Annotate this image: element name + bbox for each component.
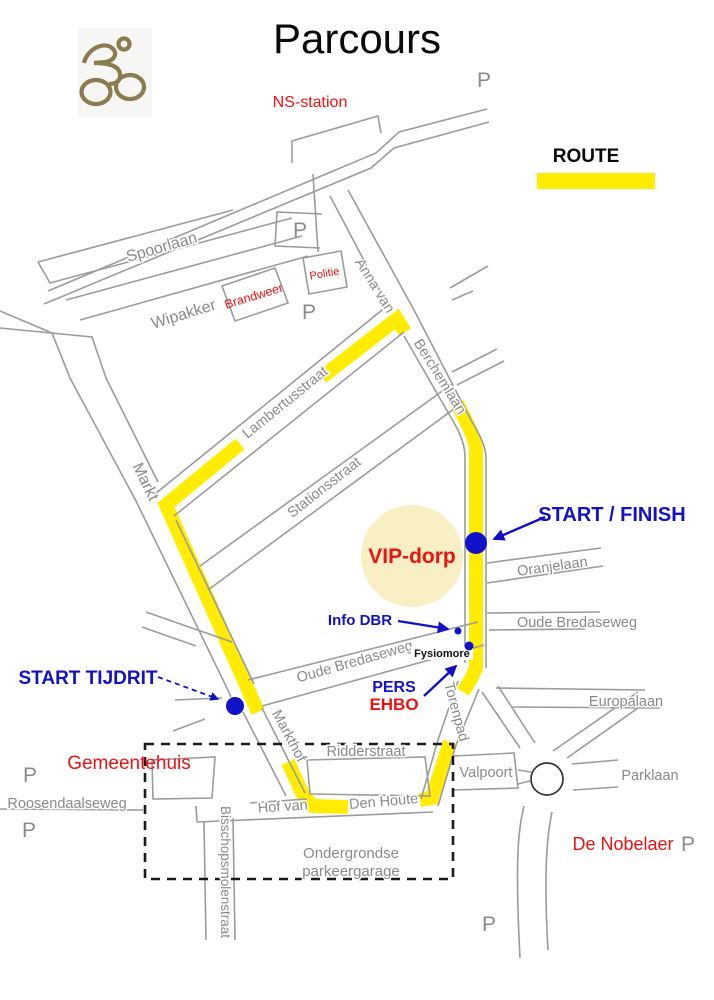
place-labels: NS-station Politie Brandweer Gemeentehui… [67, 94, 673, 854]
parking-marker: P [302, 301, 316, 324]
railway-line-upper [48, 109, 487, 291]
road-segment [517, 806, 552, 958]
info-dbr-arrow [398, 621, 448, 629]
street-label-stationsstraat: Stationsstraat [285, 454, 365, 521]
street-label-roosendaalseweg: Roosendaalseweg [7, 796, 126, 812]
road-segment [487, 612, 600, 613]
road-segment [572, 760, 618, 790]
fysiomore-label: Fysiomore [414, 648, 470, 660]
politie-label: Politie [309, 266, 341, 283]
street-label-bisschopsmolenstraat: Bisschopsmolenstraat [218, 806, 233, 938]
road-segment [518, 770, 531, 784]
parking-marker: P [23, 764, 37, 787]
page-title: Parcours [273, 15, 441, 62]
route-legend-swatch [537, 173, 655, 189]
start-tijdrit-arrow [158, 677, 218, 699]
road-segment [174, 332, 404, 516]
pers-ehbo-dot [465, 642, 474, 651]
roundabout [531, 763, 563, 795]
street-label-wipakker: Wipakker [149, 297, 218, 333]
road-segment [0, 328, 158, 482]
route-legend-label: ROUTE [553, 146, 620, 167]
street-label-parklaan: Parklaan [621, 768, 678, 784]
start-tijdrit-label: START TIJDRIT [19, 668, 158, 689]
ns-station-label: NS-station [273, 94, 348, 111]
railway-line-lower [44, 122, 489, 304]
parking-marker: P [477, 69, 491, 92]
road-segment [176, 520, 254, 684]
street-label-berchemlaan: Berchemlaan [410, 336, 469, 417]
parking-marker: P [482, 913, 496, 936]
course-markers: START / FINISH START TIJDRIT Info DBR PE… [19, 504, 686, 715]
road-segment [173, 719, 205, 731]
route-legend: ROUTE [537, 146, 655, 189]
pers-label: PERS [372, 679, 416, 696]
street-label-hof-van: Hof van [257, 797, 308, 816]
map-canvas: Spoorlaan Wipakker Lambertusstraat Stati… [0, 0, 714, 1000]
info-dbr-dot [455, 628, 462, 635]
parking-marker: P [22, 819, 36, 842]
start-finish-label: START / FINISH [538, 504, 685, 526]
parcours-map: Spoorlaan Wipakker Lambertusstraat Stati… [0, 0, 714, 1000]
fysiomore-marker: Fysiomore [411, 646, 473, 660]
street-label-ridderstraat: Ridderstraat [327, 744, 406, 760]
parking-garage-label-line1: Ondergrondse [303, 845, 399, 862]
de-nobelaer-label: De Nobelaer [572, 834, 673, 854]
road-segment [0, 311, 231, 697]
ridderstraat-block-outline [307, 757, 430, 796]
road-segment [175, 698, 222, 700]
parking-garage-label-line2: parkeergarage [302, 863, 400, 880]
street-label-lambertusstraat: Lambertusstraat [240, 364, 331, 442]
road-segment [496, 688, 645, 690]
route-segment-lambertus-markt [166, 444, 258, 712]
road-segment [482, 686, 535, 748]
street-label-valpoort: Valpoort [460, 765, 513, 781]
road-segment [450, 266, 504, 385]
road-segment [142, 627, 196, 646]
street-labels: Spoorlaan Wipakker Lambertusstraat Stati… [7, 229, 678, 938]
road-network [0, 109, 660, 958]
street-label-anna-van: Anna van [351, 256, 397, 316]
parking-marker: P [293, 219, 307, 242]
road-segment [196, 806, 197, 822]
street-label-oude-bredaseweg-east: Oude Bredaseweg [517, 615, 637, 631]
ehbo-label: EHBO [369, 695, 418, 714]
vip-dorp-label: VIP-dorp [368, 545, 456, 568]
street-label-spoorlaan: Spoorlaan [124, 229, 199, 265]
start-finish-dot [465, 532, 487, 554]
cyclist-icon [78, 28, 152, 117]
start-tijdrit-dot [226, 697, 244, 715]
parking-marker: P [681, 833, 695, 856]
gemeentehuis-label: Gemeentehuis [67, 753, 191, 774]
info-dbr-label: Info DBR [328, 612, 392, 629]
street-label-europalaan: Europalaan [589, 694, 663, 710]
street-label-markthof: Markthof [268, 707, 309, 765]
